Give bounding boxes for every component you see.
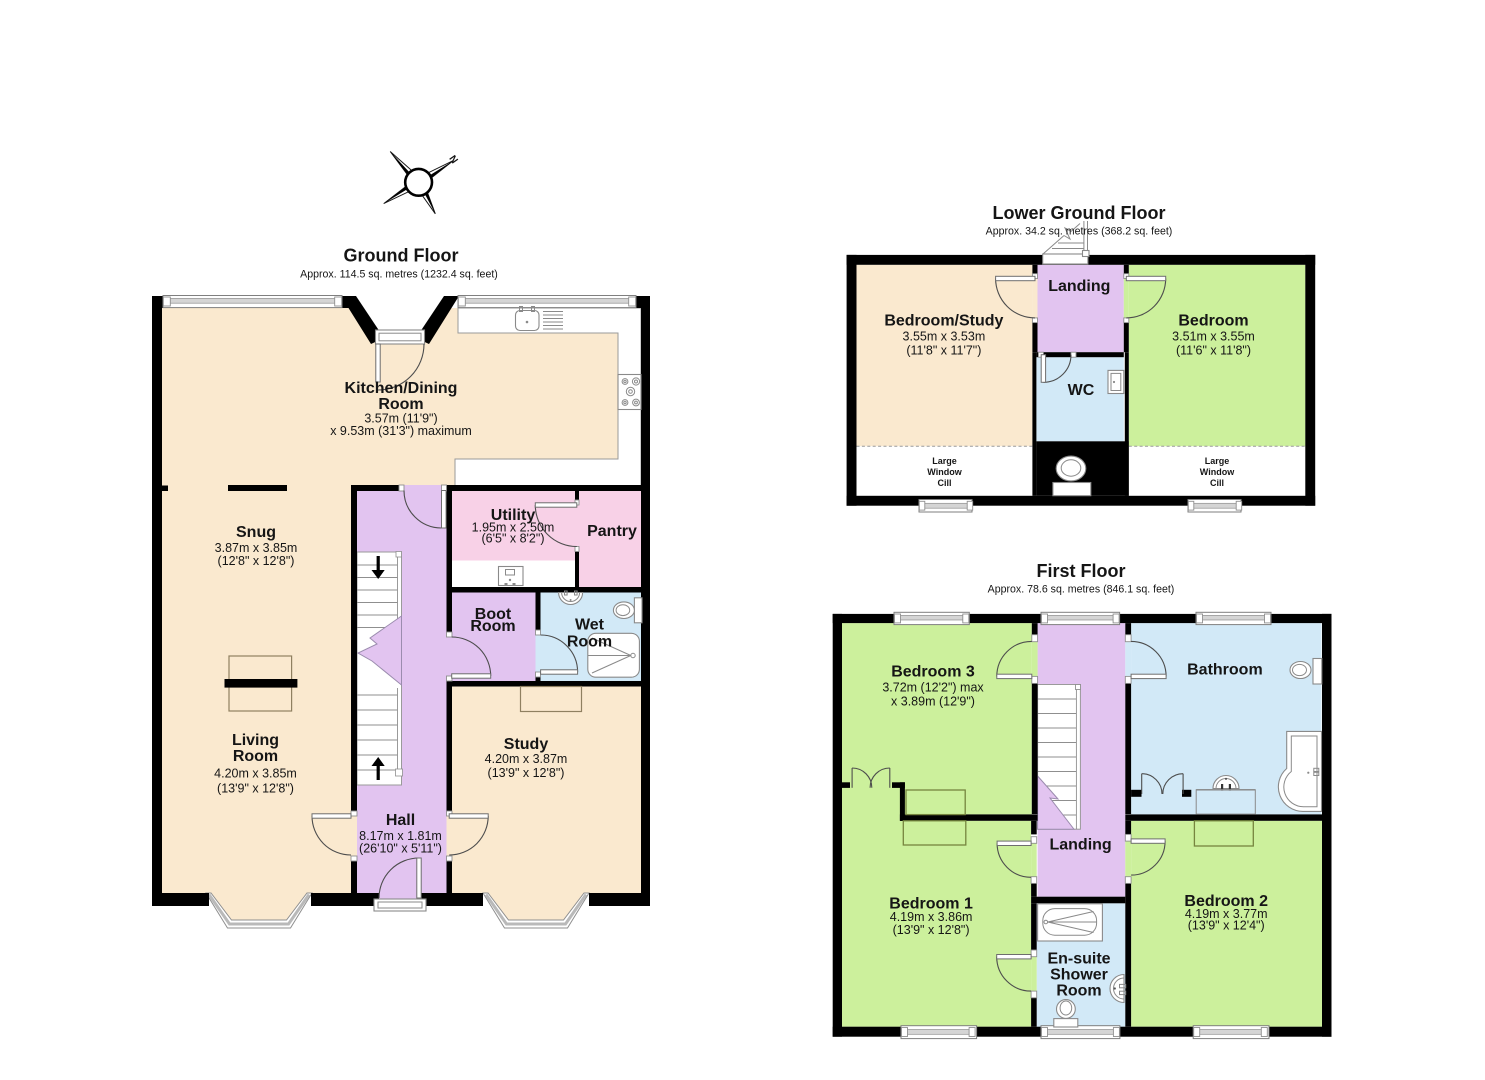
svg-text:Hall: Hall	[386, 812, 415, 829]
svg-text:4.20m x 3.87m: 4.20m x 3.87m	[485, 752, 568, 766]
svg-text:Study: Study	[504, 736, 549, 753]
svg-text:Bedroom/Study: Bedroom/Study	[884, 313, 1003, 330]
svg-text:Living: Living	[232, 732, 279, 749]
svg-text:(13'9" x 12'4"): (13'9" x 12'4")	[1188, 918, 1265, 932]
svg-text:(11'8" x 11'7"): (11'8" x 11'7")	[906, 344, 981, 358]
svg-text:Wet: Wet	[575, 617, 605, 634]
svg-text:(6'5" x 8'2"): (6'5" x 8'2")	[482, 532, 545, 546]
svg-text:Snug: Snug	[236, 524, 276, 541]
svg-text:First Floor: First Floor	[1037, 561, 1126, 581]
svg-text:Kitchen/Dining: Kitchen/Dining	[345, 380, 458, 397]
svg-text:Window: Window	[1200, 467, 1235, 477]
svg-text:(11'6" x 11'8"): (11'6" x 11'8")	[1176, 344, 1251, 358]
svg-text:Lower Ground Floor: Lower Ground Floor	[993, 203, 1166, 223]
svg-text:Approx. 114.5 sq. metres (1232: Approx. 114.5 sq. metres (1232.4 sq. fee…	[300, 268, 498, 280]
svg-text:Large: Large	[1205, 456, 1230, 466]
svg-text:Landing: Landing	[1049, 836, 1111, 853]
svg-text:Cill: Cill	[1210, 478, 1224, 488]
svg-text:Room: Room	[233, 748, 278, 765]
svg-text:x 9.53m (31'3") maximum: x 9.53m (31'3") maximum	[330, 424, 472, 438]
svg-text:Window: Window	[927, 467, 962, 477]
svg-text:(12'8" x 12'8"): (12'8" x 12'8")	[218, 554, 295, 568]
svg-text:3.55m x 3.53m: 3.55m x 3.53m	[903, 330, 986, 344]
svg-text:En-suite: En-suite	[1047, 951, 1110, 968]
svg-text:Room: Room	[470, 618, 515, 635]
svg-text:Landing: Landing	[1048, 278, 1110, 295]
svg-text:(26'10" x 5'11"): (26'10" x 5'11")	[359, 842, 442, 856]
svg-text:Room: Room	[378, 396, 423, 413]
svg-text:(13'9" x 12'8"): (13'9" x 12'8")	[217, 782, 294, 796]
svg-text:WC: WC	[1068, 382, 1095, 399]
svg-text:Approx. 78.6 sq. metres (846.1: Approx. 78.6 sq. metres (846.1 sq. feet)	[988, 584, 1175, 596]
svg-text:3.72m (12'2") max: 3.72m (12'2") max	[882, 680, 984, 694]
svg-text:Cill: Cill	[937, 478, 951, 488]
svg-text:Room: Room	[1056, 983, 1101, 1000]
svg-text:Bathroom: Bathroom	[1187, 662, 1263, 679]
svg-text:x 3.89m (12'9"): x 3.89m (12'9")	[891, 694, 975, 708]
svg-text:Bedroom 3: Bedroom 3	[891, 663, 975, 680]
svg-text:3.51m x 3.55m: 3.51m x 3.55m	[1172, 330, 1255, 344]
svg-text:Approx. 34.2 sq. metres (368.2: Approx. 34.2 sq. metres (368.2 sq. feet)	[986, 226, 1173, 238]
svg-text:4.20m x 3.85m: 4.20m x 3.85m	[214, 767, 297, 781]
svg-text:Room: Room	[567, 634, 612, 651]
svg-text:(13'9" x 12'8"): (13'9" x 12'8")	[488, 766, 565, 780]
svg-text:Bedroom: Bedroom	[1178, 313, 1248, 330]
svg-text:(13'9" x 12'8"): (13'9" x 12'8")	[893, 923, 970, 937]
svg-text:Large: Large	[932, 456, 957, 466]
svg-text:Pantry: Pantry	[587, 523, 637, 540]
svg-text:3.87m x 3.85m: 3.87m x 3.85m	[215, 541, 298, 555]
svg-text:Ground Floor: Ground Floor	[344, 246, 459, 266]
svg-text:Shower: Shower	[1050, 967, 1108, 984]
